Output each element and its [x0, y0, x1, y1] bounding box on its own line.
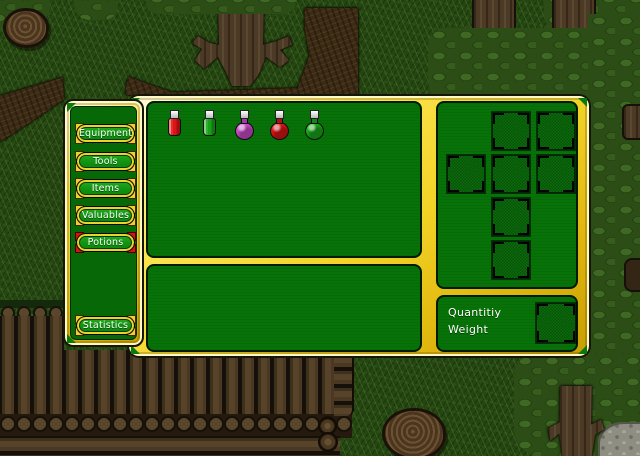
log-wall-lower-row — [0, 436, 340, 456]
tab-valuables-label: Valuables — [82, 211, 129, 221]
purple-flask-potion[interactable] — [232, 110, 256, 140]
statistics-button[interactable]: Statistics — [76, 316, 135, 335]
tree-root — [624, 258, 640, 292]
red-flask-potion[interactable] — [267, 110, 291, 140]
green-vial-potion[interactable] — [197, 110, 221, 140]
category-sidebar: Equipment Tools Items Valuables Potions … — [63, 99, 144, 347]
statistics-button-label: Statistics — [83, 321, 128, 331]
stone-path — [598, 422, 640, 456]
potion-cap — [170, 110, 179, 119]
green-flask-potion[interactable] — [302, 110, 326, 140]
item-grid — [148, 103, 420, 256]
button-pill: Tools — [76, 152, 135, 171]
log-stack-ends — [334, 352, 354, 416]
selected-item-slot[interactable] — [536, 303, 576, 343]
potion-cap — [205, 110, 214, 119]
potion-body — [235, 122, 254, 140]
log-end — [318, 432, 338, 452]
button-pill: Statistics — [76, 316, 135, 335]
red-vial-potion[interactable] — [162, 110, 186, 140]
tab-tools-label: Tools — [93, 157, 117, 167]
button-pill: Equipment — [76, 124, 135, 143]
potion-body — [305, 122, 324, 140]
tree-trunk-edge — [622, 104, 640, 140]
tab-items-label: Items — [92, 184, 120, 194]
log-wall-bottom-caps — [0, 414, 352, 438]
item-info-panel: Quantitiy Weight — [436, 295, 578, 352]
potion-cap — [310, 110, 319, 119]
equipment-slot[interactable] — [492, 198, 530, 236]
tab-equipment[interactable]: Equipment — [76, 124, 135, 143]
equipment-slot[interactable] — [492, 112, 530, 150]
tab-tools[interactable]: Tools — [76, 152, 135, 171]
potion-body — [168, 118, 181, 136]
log-wall-body — [0, 350, 352, 416]
tab-valuables[interactable]: Valuables — [76, 206, 135, 225]
equipment-slot[interactable] — [447, 155, 485, 193]
tree-stump-bottom — [382, 408, 446, 456]
quantity-label: Quantitiy — [448, 307, 501, 318]
equipment-slot[interactable] — [537, 155, 575, 193]
log-wall-upper — [0, 316, 64, 350]
potion-cap — [240, 110, 249, 119]
tab-items[interactable]: Items — [76, 179, 135, 198]
equipment-slot[interactable] — [537, 112, 575, 150]
button-pill: Valuables — [76, 206, 135, 225]
potion-body — [270, 122, 289, 140]
tree-stump — [3, 8, 49, 48]
game-screen: Quantitiy Weight Equipment Tools Items V… — [0, 0, 640, 456]
foliage-patch — [74, 0, 118, 20]
equipment-slot[interactable] — [492, 241, 530, 279]
potion-cap — [275, 110, 284, 119]
forest-canopy-right — [588, 14, 640, 398]
corner-accent — [578, 345, 587, 354]
item-grid-panel — [146, 101, 422, 258]
potion-body — [203, 118, 216, 136]
button-pill: Potions — [76, 233, 135, 252]
equipment-panel — [436, 101, 578, 289]
weight-label: Weight — [448, 324, 488, 335]
tab-potions[interactable]: Potions — [76, 233, 135, 252]
equipment-slot[interactable] — [492, 155, 530, 193]
button-pill: Items — [76, 179, 135, 198]
item-description-panel — [146, 264, 422, 352]
big-tree-canopy — [146, 0, 296, 14]
tab-equipment-label: Equipment — [79, 129, 132, 139]
corner-accent — [578, 98, 587, 107]
tab-potions-label: Potions — [88, 238, 124, 248]
